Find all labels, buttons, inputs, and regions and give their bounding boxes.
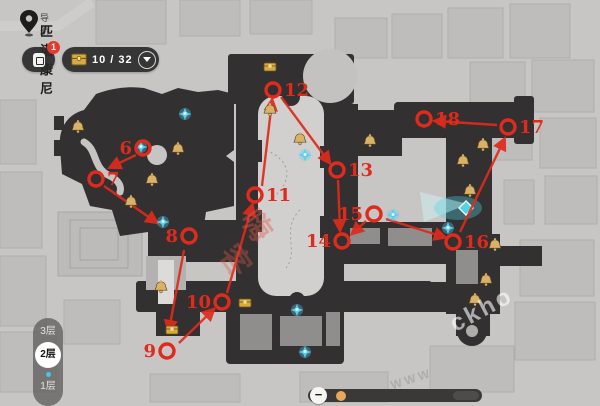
bell-icon — [464, 184, 476, 197]
bell-icon — [146, 173, 158, 186]
notice-badge: 1 — [47, 41, 60, 54]
chest-counter-pill[interactable]: 10 / 32 — [62, 47, 159, 72]
sprite-icon — [299, 149, 312, 162]
map-marker-18: 18 — [417, 109, 460, 130]
map-marker-15: 15 — [338, 204, 381, 225]
map-marker-17: 17 — [501, 117, 544, 138]
marker-number-14: 14 — [306, 231, 331, 252]
marker-number-17: 17 — [519, 117, 544, 138]
chest-icon — [239, 299, 251, 307]
marker-number-18: 18 — [435, 109, 460, 130]
marker-number-12: 12 — [284, 80, 309, 101]
route-10-to-11 — [227, 206, 252, 293]
marker-number-7: 7 — [107, 169, 120, 190]
route-16-to-17 — [460, 140, 504, 232]
bell-icon — [172, 142, 184, 155]
floor-item-1[interactable]: 1层 — [40, 380, 56, 394]
slider-end-segment — [453, 391, 479, 400]
zoom-out-button[interactable]: − — [310, 387, 327, 404]
bell-icon — [364, 134, 376, 147]
marker-number-9: 9 — [143, 341, 156, 362]
bell-icon — [480, 273, 492, 286]
map-marker-12: 12 — [266, 80, 309, 101]
bell-icon — [72, 120, 84, 133]
bell-icon — [489, 238, 501, 251]
chest-icon — [166, 326, 178, 334]
map-marker-13: 13 — [330, 160, 373, 181]
floor-item-3[interactable]: 3层 — [40, 325, 56, 339]
active-floor-dot — [46, 372, 51, 377]
map-marker-8: 8 — [165, 226, 196, 247]
map-marker-11: 11 — [248, 185, 291, 206]
marker-number-8: 8 — [165, 226, 178, 247]
bell-icon — [477, 138, 489, 151]
chest-filter-dropdown[interactable] — [138, 51, 156, 69]
marker-number-11: 11 — [266, 185, 291, 206]
map-screen: 6789101112131415161718 嗨客ckhoWWW 导航 匹诺康尼… — [0, 0, 600, 406]
chest-icon — [264, 63, 276, 71]
marker-number-15: 15 — [338, 204, 363, 225]
notice-button[interactable]: 1 — [22, 47, 55, 72]
chest-icon — [71, 53, 87, 66]
marker-number-13: 13 — [348, 160, 373, 181]
route-9-to-10 — [179, 310, 213, 343]
map-marker-9: 9 — [143, 341, 174, 362]
map-zoom-slider[interactable]: − — [308, 389, 482, 402]
location-pin-icon — [19, 9, 39, 37]
bell-icon — [469, 293, 481, 306]
map-marker-14: 14 — [306, 231, 349, 252]
floor-item-2-active[interactable]: 2层 — [35, 342, 61, 368]
route-8-to-9 — [169, 250, 184, 330]
marker-number-6: 6 — [119, 138, 132, 159]
bell-icon — [125, 195, 137, 208]
gallery-icon — [33, 53, 45, 67]
bell-icon — [155, 280, 167, 293]
route-15-to-16 — [386, 219, 444, 237]
chevron-down-icon — [143, 57, 151, 62]
marker-number-16: 16 — [464, 232, 489, 253]
bell-icon — [264, 103, 276, 116]
floor-selector: 3层 2层 1层 — [33, 318, 63, 406]
bell-icon — [457, 154, 469, 167]
marker-number-10: 10 — [186, 292, 211, 313]
zoom-slider-handle[interactable] — [336, 391, 346, 401]
sprite-icon — [299, 346, 312, 359]
sprite-icon — [179, 108, 192, 121]
sprite-icon — [442, 222, 455, 235]
chest-counter-value: 10 / 32 — [92, 54, 133, 66]
map-marker-16: 16 — [446, 232, 489, 253]
sprite-icon — [291, 304, 304, 317]
map-marker-10: 10 — [186, 292, 229, 313]
bell-icon — [294, 132, 306, 145]
